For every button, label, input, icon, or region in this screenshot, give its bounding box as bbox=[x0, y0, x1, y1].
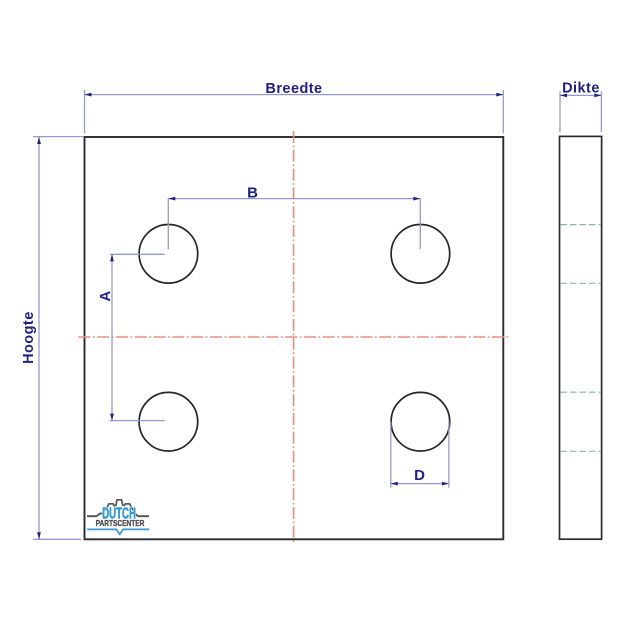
svg-text:Hoogte: Hoogte bbox=[21, 311, 37, 364]
svg-text:A: A bbox=[97, 291, 114, 302]
svg-text:Dikte: Dikte bbox=[562, 81, 600, 97]
svg-text:PARTSCENTER: PARTSCENTER bbox=[96, 518, 145, 528]
svg-text:D: D bbox=[414, 467, 425, 484]
svg-text:Breedte: Breedte bbox=[265, 81, 322, 97]
svg-text:B: B bbox=[247, 185, 258, 202]
